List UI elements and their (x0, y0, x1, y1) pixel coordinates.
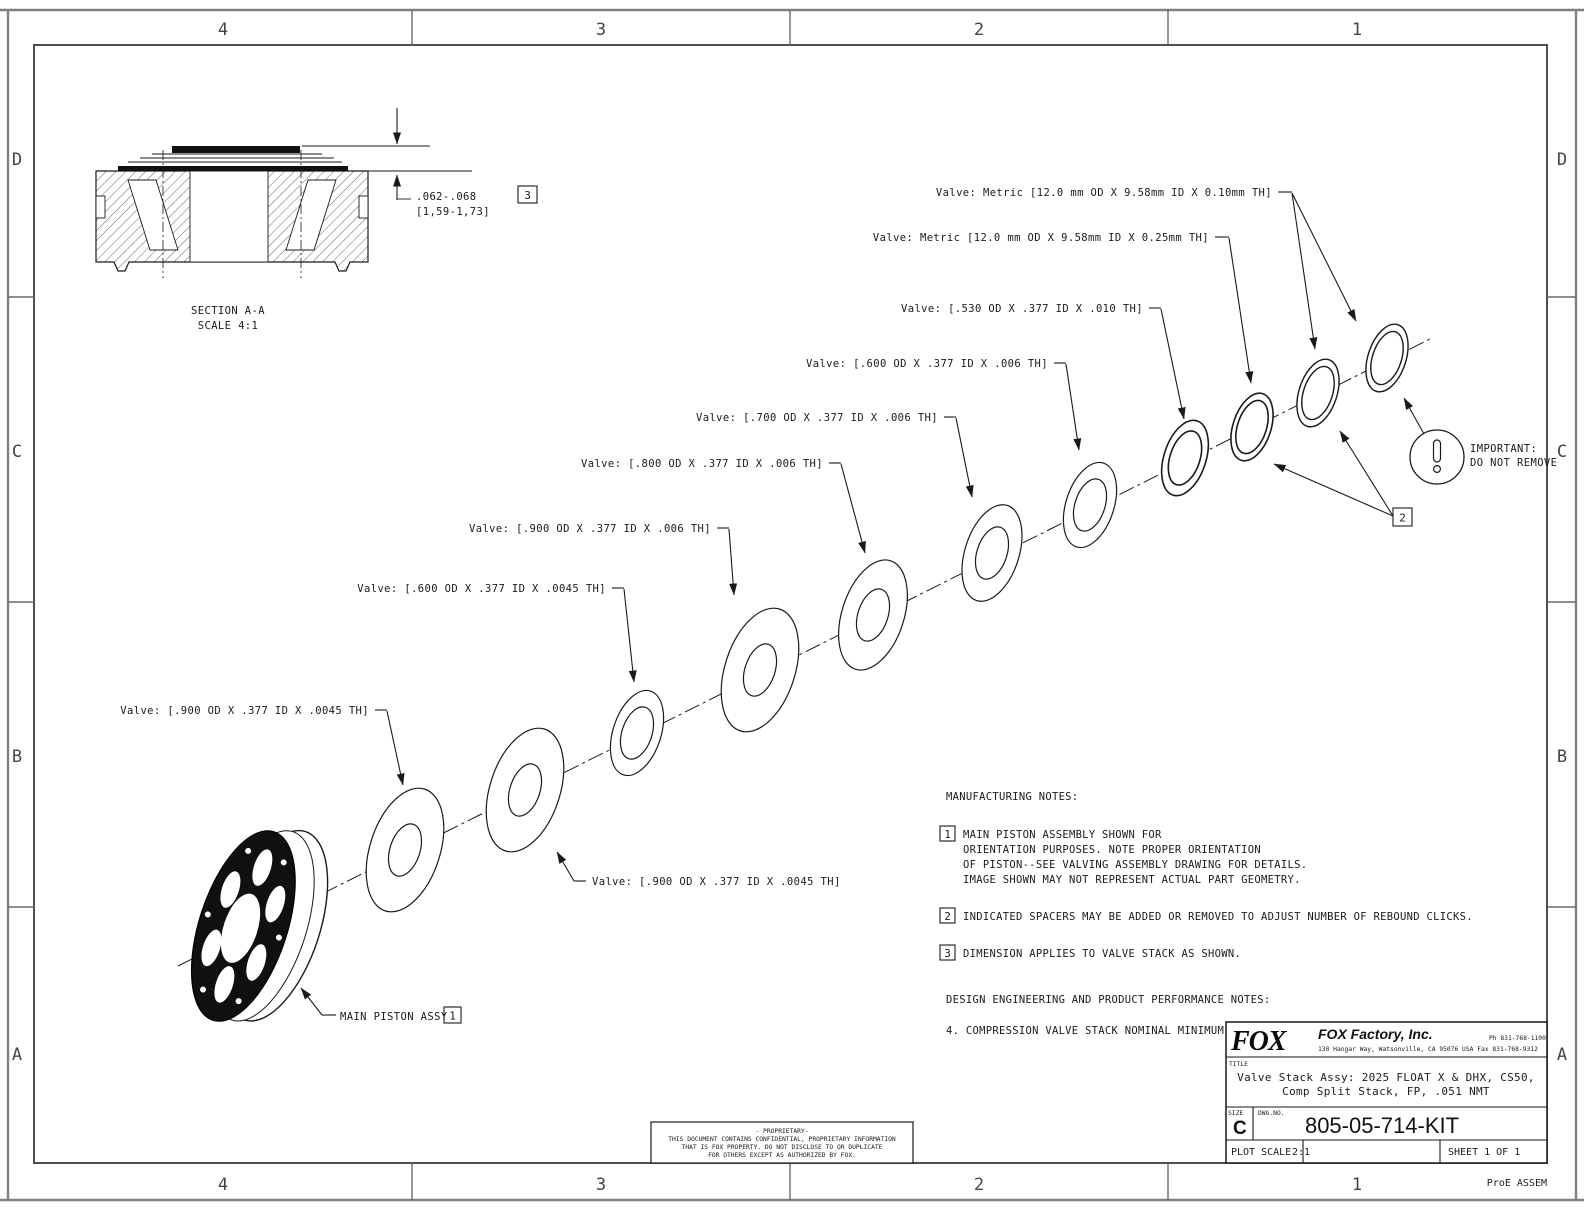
callout-600-006: Valve: [.600 OD X .377 ID X .006 TH] (806, 358, 1048, 370)
zone-top-2: 2 (974, 20, 984, 40)
callout-main-piston: MAIN PISTON ASSY (340, 1011, 448, 1023)
footer-note: ProE ASSEM (1487, 1178, 1547, 1189)
callout-900-006: Valve: [.900 OD X .377 ID X .006 TH] (469, 523, 711, 535)
note-1-line-4: IMAGE SHOWN MAY NOT REPRESENT ACTUAL PAR… (963, 874, 1301, 886)
stack-dimension-in: .062-.068 (416, 191, 477, 203)
note-1-ref: 1 (944, 828, 951, 841)
exclamation-icon (1434, 440, 1441, 472)
size-label: SIZE (1228, 1110, 1243, 1117)
washer-900-0045-a (352, 778, 458, 921)
notes-block: MANUFACTURING NOTES: 1 MAIN PISTON ASSEM… (940, 791, 1473, 1037)
zone-right-d: D (1557, 150, 1567, 170)
zone-top-4: 4 (218, 20, 228, 40)
notes-heading: MANUFACTURING NOTES: (946, 791, 1078, 803)
zone-left-d: D (12, 150, 22, 170)
callout-600-0045: Valve: [.600 OD X .377 ID X .0045 TH] (357, 583, 606, 595)
section-view: .062-.068 [1,59-1,73] 3 SECTION A-A SCAL… (96, 108, 537, 332)
spacer-ref: 2 (1274, 431, 1412, 526)
zone-left-a: A (12, 1045, 22, 1065)
callout-800-006: Valve: [.800 OD X .377 ID X .006 TH] (581, 458, 823, 470)
section-valve-stack (118, 146, 348, 171)
washer-metric-010-b (1358, 319, 1416, 397)
section-scale: SCALE 4:1 (198, 320, 259, 332)
important-body: DO NOT REMOVE (1470, 457, 1557, 469)
plot-scale-label: PLOT SCALE (1231, 1147, 1291, 1158)
note-1-line-1: MAIN PISTON ASSEMBLY SHOWN FOR (963, 829, 1162, 841)
callout-metric-010: Valve: Metric [12.0 mm OD X 9.58mm ID X … (936, 187, 1272, 199)
callout-700-006: Valve: [.700 OD X .377 ID X .006 TH] (696, 412, 938, 424)
note-3-text: DIMENSION APPLIES TO VALVE STACK AS SHOW… (963, 948, 1241, 960)
washer-900-006 (707, 598, 813, 741)
ref-2-flag: 2 (1399, 512, 1406, 525)
dwg-no-label: DWG.NO. (1258, 1110, 1285, 1117)
washer-metric-010-a (1289, 354, 1347, 432)
piston-illustration (171, 809, 348, 1044)
washer-600-006 (1054, 456, 1127, 555)
zone-left-b: B (12, 747, 22, 767)
title-label: TITLE (1229, 1061, 1248, 1068)
callout-530: Valve: [.530 OD X .377 ID X .010 TH] (901, 303, 1143, 315)
proprietary-line-2: THIS DOCUMENT CONTAINS CONFIDENTIAL, PRO… (668, 1136, 896, 1143)
washer-700-006 (951, 497, 1033, 609)
proprietary-line-4: FOR OTHERS EXCEPT AS AUTHORIZED BY FOX. (708, 1152, 856, 1159)
size-value: C (1233, 1118, 1247, 1139)
leader-lines (301, 192, 1356, 1015)
proprietary-box: - PROPRIETARY- THIS DOCUMENT CONTAINS CO… (651, 1122, 913, 1163)
proprietary-line-3: THAT IS FOX PROPERTY. DO NOT DISCLOSE TO… (682, 1144, 883, 1151)
zone-top-1: 1 (1352, 20, 1362, 40)
drawing-title-line-1: Valve Stack Assy: 2025 FLOAT X & DHX, CS… (1237, 1071, 1535, 1084)
design-notes-heading: DESIGN ENGINEERING AND PRODUCT PERFORMAN… (946, 994, 1270, 1006)
important-flag: IMPORTANT: DO NOT REMOVE (1404, 398, 1557, 484)
washer-900-0045-b (472, 718, 578, 861)
zone-bottom-2: 2 (974, 1175, 984, 1195)
drawing-sheet: 4 3 2 1 4 3 2 1 D C B A D C B A ProE ASS… (0, 0, 1584, 1224)
callout-900-0045-a: Valve: [.900 OD X .377 ID X .0045 TH] (120, 705, 369, 717)
drawing-canvas: 4 3 2 1 4 3 2 1 D C B A D C B A ProE ASS… (0, 0, 1584, 1224)
zone-left-c: C (12, 442, 22, 462)
fox-logo: FOX (1230, 1026, 1288, 1057)
ref-1-flag: 1 (449, 1010, 456, 1023)
company-name: FOX Factory, Inc. (1318, 1026, 1433, 1042)
note-2-text: INDICATED SPACERS MAY BE ADDED OR REMOVE… (963, 911, 1473, 923)
zone-bottom-1: 1 (1352, 1175, 1362, 1195)
sheet-value: SHEET 1 OF 1 (1448, 1147, 1520, 1158)
plot-scale-value: 2:1 (1292, 1147, 1310, 1158)
zone-bottom-3: 3 (596, 1175, 606, 1195)
zone-right-b: B (1557, 747, 1567, 767)
section-bore (190, 171, 268, 262)
ref-3-flag: 3 (524, 189, 531, 202)
dwg-no-value: 805-05-714-KIT (1305, 1113, 1459, 1138)
stack-dimension-mm: [1,59-1,73] (416, 206, 490, 218)
washer-600-0045 (601, 684, 674, 783)
note-3-ref: 3 (944, 947, 951, 960)
drawing-title-line-2: Comp Split Stack, FP, .051 NMT (1282, 1085, 1490, 1098)
callout-metric-025: Valve: Metric [12.0 mm OD X 9.58mm ID X … (873, 232, 1209, 244)
company-address: 130 Hangar Way, Watsonville, CA 95076 US… (1318, 1046, 1538, 1053)
note-2-ref: 2 (944, 910, 951, 923)
important-title: IMPORTANT: (1470, 443, 1537, 455)
note-1-line-2: ORIENTATION PURPOSES. NOTE PROPER ORIENT… (963, 844, 1261, 856)
callout-900-0045-b: Valve: [.900 OD X .377 ID X .0045 TH] (592, 876, 841, 888)
note-1-line-3: OF PISTON--SEE VALVING ASSEMBLY DRAWING … (963, 859, 1307, 871)
proprietary-line-1: - PROPRIETARY- (755, 1128, 808, 1135)
section-label: SECTION A-A (191, 305, 265, 317)
washer-metric-025 (1223, 388, 1281, 466)
zone-bottom-4: 4 (218, 1175, 228, 1195)
zone-right-c: C (1557, 442, 1567, 462)
title-block: FOX FOX Factory, Inc. Ph 831-768-1100 13… (1226, 1022, 1547, 1163)
company-phone: Ph 831-768-1100 (1489, 1035, 1546, 1042)
zone-right-a: A (1557, 1045, 1567, 1065)
washer-800-006 (826, 551, 920, 679)
zone-top-3: 3 (596, 20, 606, 40)
washer-530-010 (1153, 414, 1217, 501)
